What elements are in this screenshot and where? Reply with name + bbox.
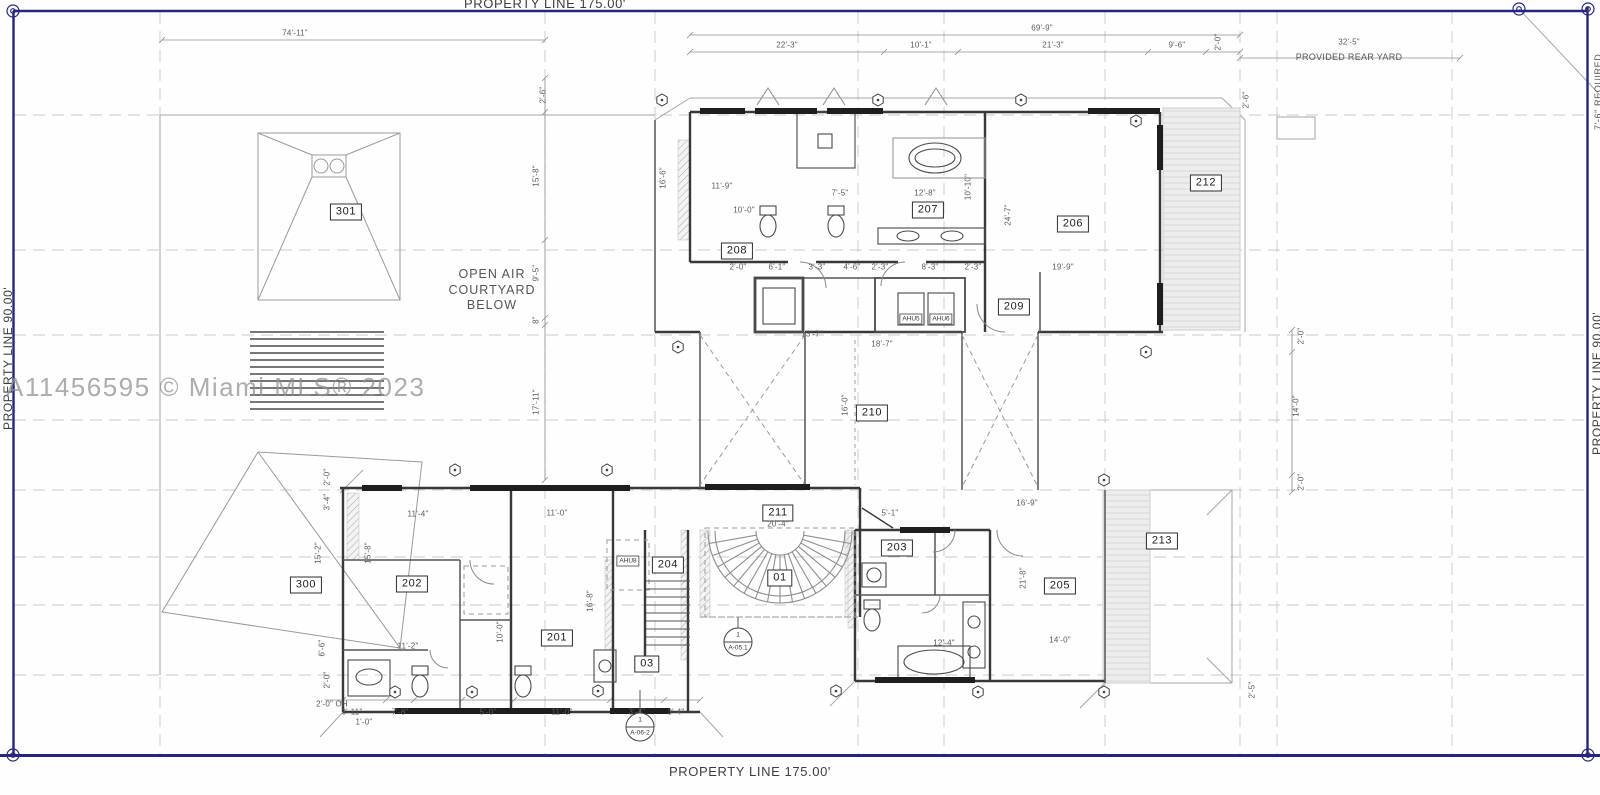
section-marker-number: 1 [627, 715, 654, 728]
room-label-213: 213 [1146, 533, 1178, 550]
dimension-text: 14'-0" [1049, 636, 1071, 645]
dimension-text: 3'-4" [323, 494, 332, 511]
dimension-text: 16'-0" [841, 394, 850, 416]
section-marker: 1A-06-2 [626, 713, 655, 742]
room-label-208: 208 [721, 243, 753, 260]
dimension-text: 11'-2" [398, 642, 419, 651]
dimension-text: 19'-9" [1052, 263, 1074, 272]
dimension-text: 22'-3" [776, 41, 798, 50]
section-marker-sheet: A-06-2 [627, 728, 654, 740]
dimension-text: 5'-1" [882, 509, 899, 518]
room-label-205: 205 [1044, 578, 1076, 595]
dimension-text: 10'-1" [910, 41, 932, 50]
room-label-202: 202 [396, 576, 428, 593]
equipment-label-AHU6: AHU6 [929, 314, 952, 325]
dimension-text: 2'-0" [323, 672, 332, 689]
room-label-206: 206 [1057, 216, 1089, 233]
dimension-text: 14'-0" [1292, 395, 1301, 417]
dimension-text: 7'-5" [832, 189, 849, 198]
dimension-text: 15'-8" [532, 165, 541, 187]
dimension-text: 10'-10" [964, 174, 973, 200]
dimension-text: 15'-2" [314, 542, 323, 564]
dimension-text: 12'-8" [914, 189, 936, 198]
dimension-text: 5'-0" [480, 708, 497, 717]
dimension-text: 11'-4" [408, 510, 429, 519]
dimension-text: 69'-9" [1031, 24, 1053, 33]
dimension-text: 24'-7" [1004, 204, 1013, 226]
floorplan-sheet: PROPERTY LINE 175.00' PROPERTY LINE 175.… [0, 0, 1600, 795]
room-label-207: 207 [912, 202, 944, 219]
dimension-text: 17'-11" [532, 389, 541, 415]
room-label-212: 212 [1190, 175, 1222, 192]
dimension-text: 16'-6" [659, 167, 668, 189]
dimension-text: 2'-0" [1297, 474, 1306, 491]
dimension-text: 2'-0" [1297, 328, 1306, 345]
dimension-text: 21'-8" [1019, 567, 1028, 589]
equipment-label-AHU8: AHU8 [616, 556, 639, 567]
dimension-text: 13'-7" [801, 330, 823, 339]
room-label-301: 301 [330, 204, 362, 221]
dimension-text: 20'-4" [767, 520, 789, 529]
courtyard-note-line1: OPEN AIR [448, 267, 535, 283]
courtyard-note: OPEN AIR COURTYARD BELOW [448, 267, 535, 314]
dimension-text: 8'-3" [922, 263, 939, 272]
dimension-text: 15'-8" [364, 542, 373, 564]
dimension-text: 2'-3" [872, 263, 889, 272]
mls-watermark: A11456595 © Miami MLS® 2023 [6, 372, 425, 403]
equipment-label-AHU5: AHU5 [899, 314, 922, 325]
property-line-top-label: PROPERTY LINE 175.00' [464, 0, 626, 11]
room-label-03: 03 [634, 656, 659, 673]
courtyard-note-line3: BELOW [448, 298, 535, 314]
property-line-right-label: PROPERTY LINE 90.00' [1590, 312, 1600, 455]
dimension-text: 16'-8" [586, 590, 595, 612]
room-label-210: 210 [856, 405, 888, 422]
dimension-text: 9'-6" [1169, 41, 1186, 50]
dimension-text: 2'-3" [965, 263, 982, 272]
room-label-204: 204 [652, 557, 684, 574]
courtyard-note-line2: COURTYARD [448, 282, 535, 298]
dimension-text: 10'-0" [733, 206, 755, 215]
dimension-text: 2'-0" [730, 263, 747, 272]
room-label-203: 203 [881, 540, 913, 557]
dimension-text: 2'-6" [1242, 92, 1251, 109]
property-line-left-label: PROPERTY LINE 90.00' [1, 287, 15, 430]
dimension-text: 12'-4" [933, 639, 955, 648]
fixtures [348, 112, 985, 697]
dimension-text: 3'-3" [809, 263, 826, 272]
dimension-text: 2'-0" [323, 469, 332, 486]
property-line-bottom-label: PROPERTY LINE 175.00' [669, 764, 831, 779]
section-marker-number: 1 [725, 630, 752, 643]
dimension-text: 11'-0" [547, 509, 568, 518]
right-setback-note: 7'-6" REQUIRED [1593, 54, 1600, 130]
section-marker-sheet: A-05.1 [725, 643, 752, 655]
room-label-300: 300 [290, 577, 322, 594]
dimension-text: 6'-1" [769, 263, 786, 272]
open-to-below-braces [464, 335, 1038, 617]
dimension-text: 3'-11" [342, 708, 363, 717]
dimension-text: 4'-6" [844, 263, 861, 272]
dimension-text: 2'-0" [1214, 34, 1223, 51]
dimension-text: 74'-11" [282, 29, 308, 38]
room-label-201: 201 [541, 630, 573, 647]
roof-vents [757, 88, 947, 105]
dimension-text: 1'-0" [356, 718, 373, 727]
window-bars [362, 108, 1163, 714]
hex-markers [390, 94, 1151, 698]
dimension-text: 7'-8" [392, 708, 409, 717]
deck-213-hatch [1103, 490, 1150, 683]
section-marker: 1A-05.1 [724, 628, 753, 657]
dimension-text: 2'-5" [1248, 682, 1257, 699]
room-label-209: 209 [998, 299, 1030, 316]
room-label-01: 01 [767, 570, 792, 587]
dimension-text: 10'-0" [496, 621, 505, 643]
dimension-text: 11'-9" [712, 182, 733, 191]
dimension-text: 6'-6" [318, 640, 327, 657]
rear-yard-note: PROVIDED REAR YARD [1296, 52, 1403, 62]
dimension-text: 16'-9" [1016, 499, 1038, 508]
dimension-text: 8" [532, 316, 541, 324]
dimension-text: 11'-0" [552, 708, 573, 717]
dimension-text: 3'-4" [668, 708, 685, 717]
dimension-text: 18'-7" [871, 340, 893, 349]
dimension-text: 32'-5" [1338, 38, 1360, 47]
dimension-text: 2'-6" [539, 87, 548, 104]
deck-212-hatch [1163, 108, 1240, 330]
dimension-text: 21'-3" [1042, 41, 1064, 50]
dimension-text: 9'-5" [532, 265, 541, 282]
